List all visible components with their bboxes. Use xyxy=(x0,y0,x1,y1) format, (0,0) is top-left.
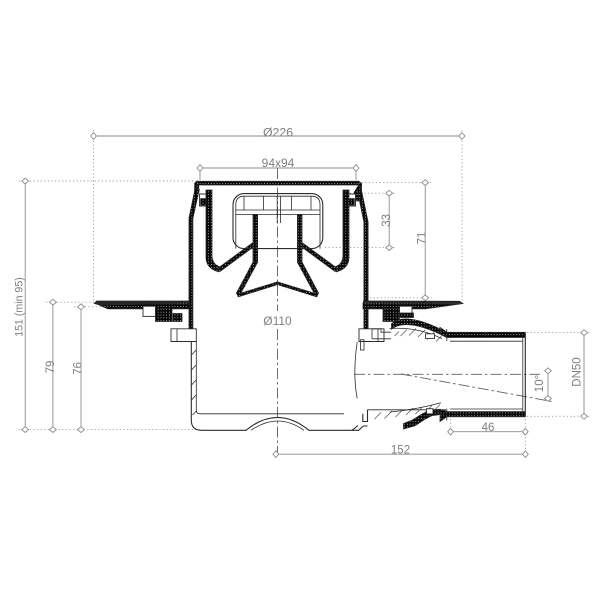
svg-text:151 (min 95): 151 (min 95) xyxy=(14,277,26,336)
svg-text:Ø226: Ø226 xyxy=(263,125,293,139)
svg-text:94x94: 94x94 xyxy=(262,156,295,170)
svg-text:Ø110: Ø110 xyxy=(263,314,292,328)
svg-text:79: 79 xyxy=(45,361,57,374)
svg-text:76: 76 xyxy=(72,362,84,375)
svg-text:71: 71 xyxy=(417,232,429,245)
svg-text:33: 33 xyxy=(381,214,393,227)
svg-text:152: 152 xyxy=(391,444,410,456)
svg-text:DN50: DN50 xyxy=(572,357,584,386)
svg-text:10°: 10° xyxy=(534,375,546,392)
svg-text:46: 46 xyxy=(482,422,495,434)
